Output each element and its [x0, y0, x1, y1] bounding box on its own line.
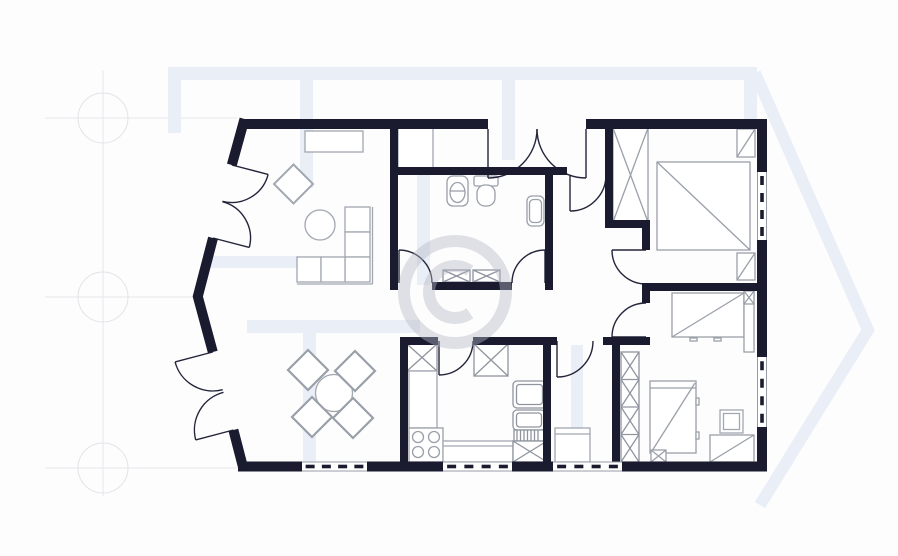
kitchen-microwave: [513, 410, 545, 430]
bedroom2-stool: [720, 410, 743, 433]
bedroom2-wardrobe: [621, 352, 639, 462]
storage-cabinet: [555, 428, 590, 462]
kitchen-oven: [513, 381, 546, 408]
kitchen-dishwasher: [514, 430, 544, 441]
kitchen-counter-bottom: [443, 441, 513, 462]
bedroom2-window: [758, 357, 767, 427]
bedroom2-desk: [710, 435, 754, 462]
bedroom1-window: [758, 172, 767, 240]
bedroom1-wardrobe: [613, 128, 648, 222]
kitchen-counter-left: [409, 371, 437, 428]
bedroom2-bed-2: [650, 381, 699, 462]
floor-plan-svg: [0, 0, 898, 556]
bath-sink: [527, 196, 544, 226]
bedroom1-nightstand-2: [737, 253, 755, 280]
kitchen-stove: [409, 428, 443, 462]
hall-closet: [398, 126, 433, 168]
kitchen-window: [443, 462, 512, 471]
bath-toilet: [447, 176, 468, 206]
living-sideboard: [305, 131, 363, 152]
bedroom1-bed: [657, 162, 750, 250]
living-coffee-table: [305, 210, 335, 240]
bedroom1-nightstand-1: [737, 129, 755, 157]
bath-bidet: [474, 176, 498, 206]
storage-window: [553, 462, 622, 471]
floor-plan-page: [0, 0, 898, 556]
kitchen-cabinet-x2: [474, 344, 508, 376]
kitchen-fridge: [513, 441, 547, 462]
kitchen-cabinet-x1: [407, 344, 437, 371]
living-window: [302, 462, 367, 471]
